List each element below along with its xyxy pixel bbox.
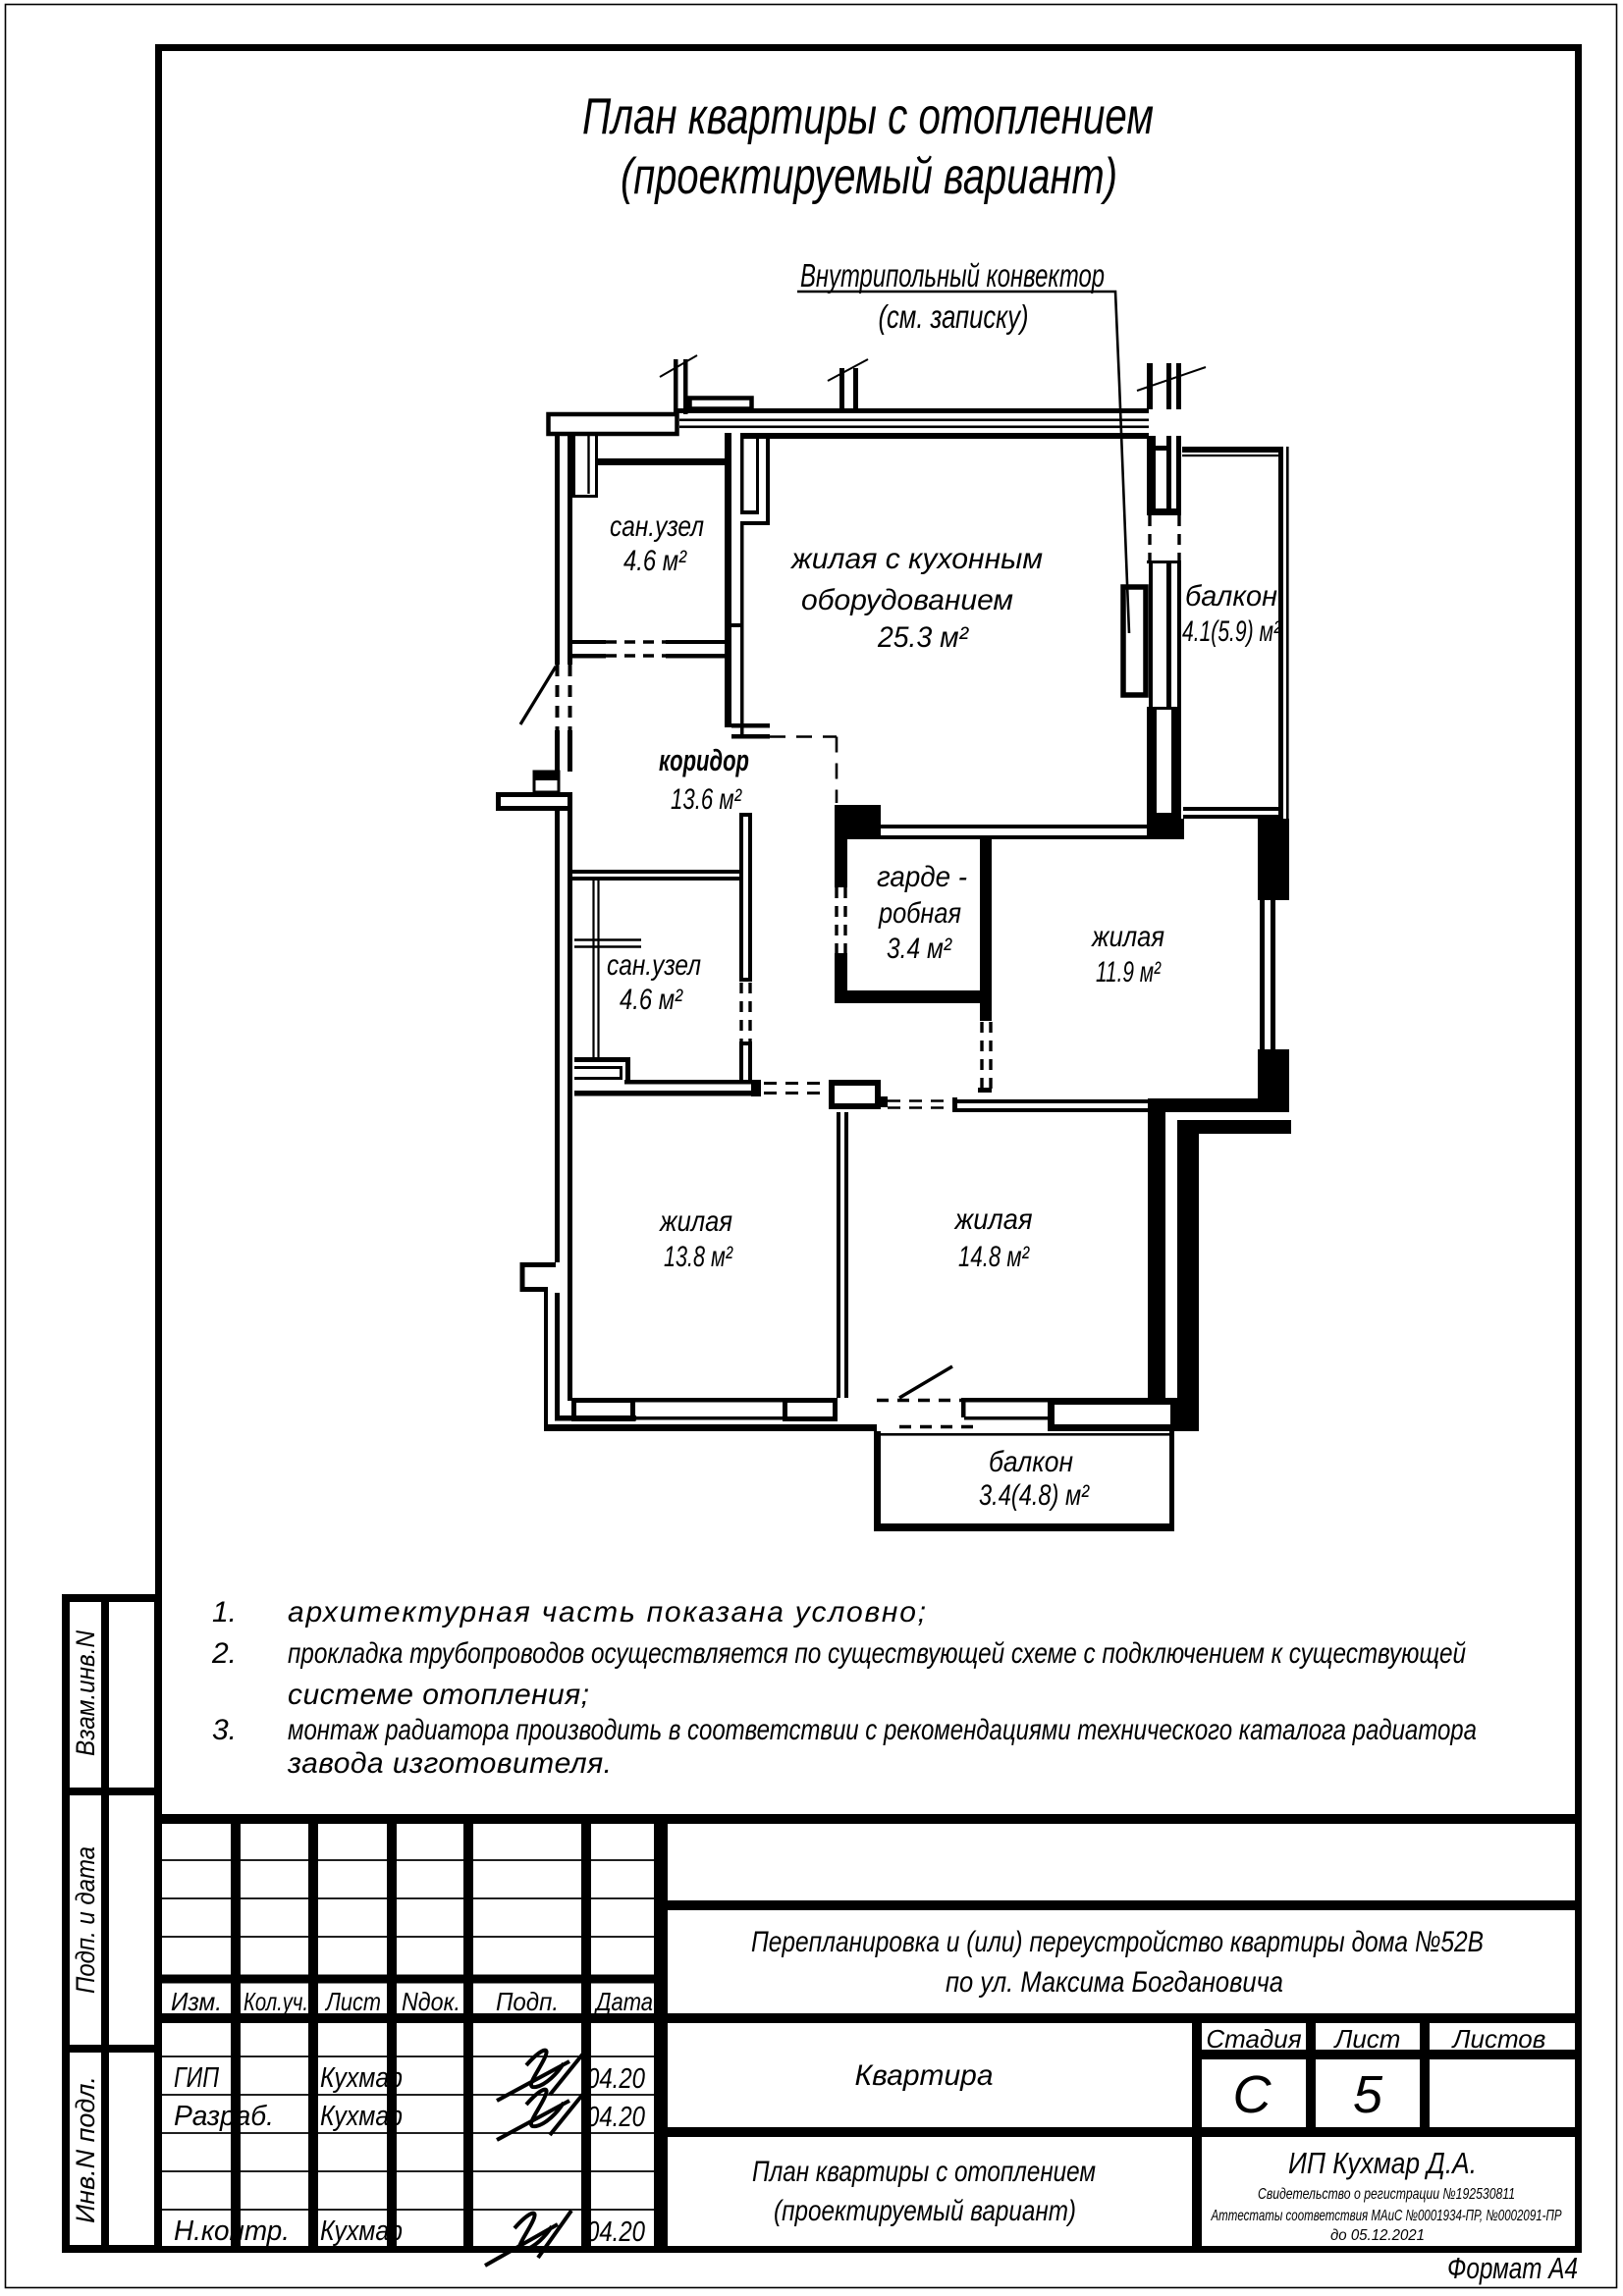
- svg-text:04.20: 04.20: [586, 2063, 645, 2095]
- svg-text:жилая с кухонным: жилая с кухонным: [789, 543, 1043, 575]
- svg-text:жилая: жилая: [1090, 921, 1164, 953]
- svg-text:коридор: коридор: [659, 743, 749, 777]
- svg-text:Nдок.: Nдок.: [402, 1987, 460, 2016]
- svg-text:прокладка трубопроводов осущес: прокладка трубопроводов осуществляется п…: [288, 1637, 1466, 1670]
- svg-text:2.: 2.: [211, 1637, 237, 1670]
- svg-text:4.1(5.9) м²: 4.1(5.9) м²: [1182, 615, 1281, 648]
- svg-text:Лист: Лист: [324, 1987, 381, 2016]
- svg-text:Аттестаты соответствия МАиС №0: Аттестаты соответствия МАиС №0001934-ПР,…: [1211, 2208, 1562, 2224]
- svg-text:3.4 м²: 3.4 м²: [887, 933, 952, 965]
- svg-text:14.8 м²: 14.8 м²: [958, 1241, 1030, 1273]
- svg-text:11.9 м²: 11.9 м²: [1096, 956, 1162, 988]
- svg-text:(проектируемый вариант): (проектируемый вариант): [621, 148, 1117, 205]
- svg-text:завода изготовителя.: завода изготовителя.: [287, 1747, 612, 1780]
- svg-text:3.4(4.8) м²: 3.4(4.8) м²: [979, 1479, 1090, 1512]
- svg-text:архитектурная часть показана у: архитектурная часть показана условно;: [288, 1596, 926, 1629]
- svg-text:13.6 м²: 13.6 м²: [671, 783, 742, 816]
- svg-text:План квартиры с отоплением: План квартиры с отоплением: [582, 88, 1154, 145]
- svg-text:Изм.: Изм.: [171, 1987, 222, 2016]
- svg-text:гарде -: гарде -: [877, 861, 967, 893]
- svg-text:Кухмар: Кухмар: [320, 2101, 403, 2132]
- svg-text:25.3 м²: 25.3 м²: [877, 621, 969, 654]
- svg-text:Перепланировка и (или) переуст: Перепланировка и (или) переустройство кв…: [751, 1926, 1484, 1958]
- svg-text:4.6 м²: 4.6 м²: [623, 545, 687, 577]
- svg-text:оборудованием: оборудованием: [801, 584, 1013, 616]
- svg-text:Стадия: Стадия: [1206, 2024, 1301, 2054]
- svg-text:Взам.инв.N: Взам.инв.N: [71, 1630, 100, 1756]
- svg-text:Свидетельство о регистрации №1: Свидетельство о регистрации №192530811: [1258, 2186, 1515, 2203]
- svg-text:Разраб.: Разраб.: [174, 2101, 274, 2132]
- svg-text:по ул. Максима Богдановича: по ул. Максима Богдановича: [946, 1966, 1283, 1999]
- svg-text:Квартира: Квартира: [854, 2059, 993, 2092]
- svg-text:системе отопления;: системе отопления;: [288, 1679, 589, 1711]
- svg-text:Подп. и дата: Подп. и дата: [71, 1846, 100, 1994]
- svg-text:04.20: 04.20: [586, 2216, 645, 2248]
- svg-text:С: С: [1233, 2065, 1272, 2124]
- svg-text:Инв.N подл.: Инв.N подл.: [71, 2076, 100, 2223]
- svg-text:04.20: 04.20: [586, 2102, 645, 2133]
- svg-text:монтаж радиатора производить в: монтаж радиатора производить в соответст…: [288, 1714, 1477, 1746]
- svg-text:13.8 м²: 13.8 м²: [664, 1241, 733, 1273]
- svg-text:Кухмар: Кухмар: [320, 2062, 403, 2094]
- svg-text:балкон: балкон: [989, 1446, 1073, 1478]
- svg-text:Подп.: Подп.: [496, 1987, 559, 2016]
- svg-text:Кол.уч.: Кол.уч.: [243, 1987, 308, 2016]
- svg-text:сан.узел: сан.узел: [607, 949, 701, 982]
- svg-text:жилая: жилая: [953, 1203, 1033, 1236]
- svg-text:Листов: Листов: [1451, 2024, 1546, 2054]
- svg-text:Н.контр.: Н.контр.: [174, 2216, 290, 2247]
- svg-text:(см. записку): (см. записку): [879, 298, 1029, 335]
- svg-text:Дата: Дата: [593, 1987, 653, 2016]
- svg-text:до 05.12.2021: до 05.12.2021: [1330, 2227, 1425, 2244]
- svg-text:План квартиры с отоплением: План квартиры с отоплением: [752, 2156, 1096, 2188]
- svg-text:ГИП: ГИП: [174, 2062, 220, 2094]
- svg-text:Формат А4: Формат А4: [1447, 2251, 1578, 2285]
- svg-text:4.6 м²: 4.6 м²: [620, 984, 683, 1016]
- svg-text:ИП Кухмар Д.А.: ИП Кухмар Д.А.: [1288, 2146, 1477, 2180]
- svg-text:балкон: балкон: [1185, 580, 1277, 613]
- svg-text:Внутрипольный конвектор: Внутрипольный конвектор: [800, 257, 1105, 294]
- svg-text:Лист: Лист: [1333, 2024, 1401, 2054]
- svg-text:3.: 3.: [212, 1714, 237, 1746]
- svg-text:(проектируемый вариант): (проектируемый вариант): [774, 2195, 1076, 2227]
- svg-text:сан.узел: сан.узел: [610, 510, 704, 543]
- svg-text:жилая: жилая: [658, 1205, 732, 1238]
- svg-text:5: 5: [1353, 2065, 1383, 2124]
- svg-text:Кухмар: Кухмар: [320, 2216, 403, 2247]
- svg-text:робная: робная: [878, 897, 961, 930]
- svg-text:1.: 1.: [212, 1596, 237, 1629]
